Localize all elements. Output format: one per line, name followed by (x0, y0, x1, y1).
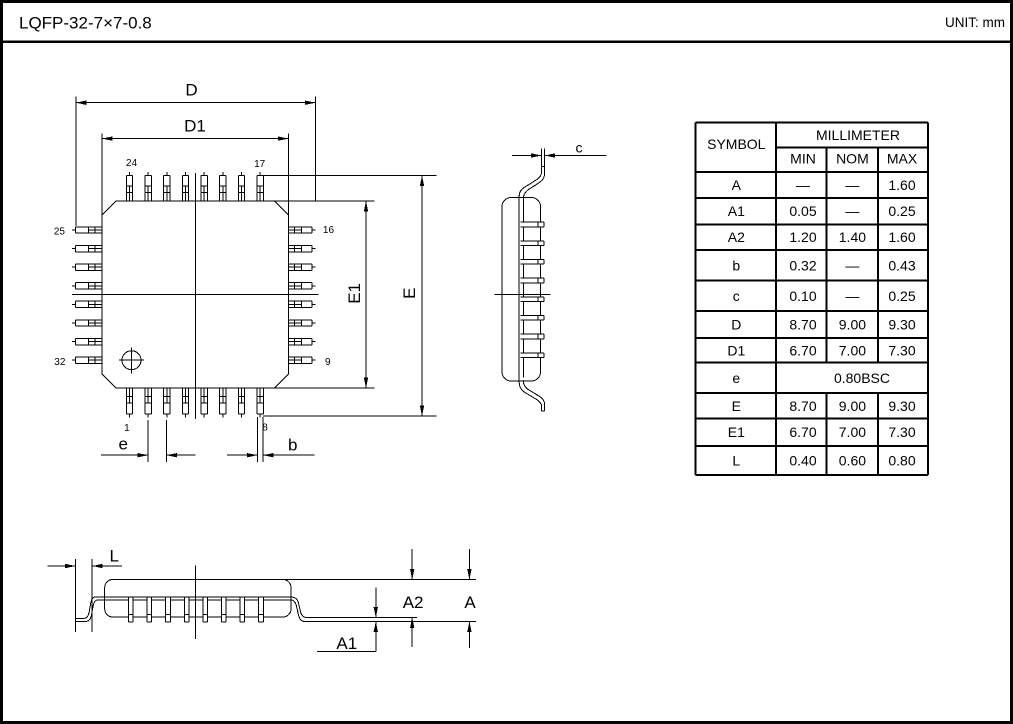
svg-text:LQFP-32-7×7-0.8: LQFP-32-7×7-0.8 (19, 14, 152, 33)
svg-text:6.70: 6.70 (789, 424, 816, 440)
svg-text:—: — (845, 257, 859, 273)
svg-text:9: 9 (325, 357, 331, 368)
svg-text:b: b (732, 257, 740, 273)
svg-text:32: 32 (54, 357, 66, 368)
svg-text:e: e (732, 370, 740, 386)
svg-text:9.30: 9.30 (888, 398, 915, 414)
svg-text:24: 24 (126, 158, 138, 169)
svg-text:E: E (732, 398, 741, 414)
svg-text:1.20: 1.20 (789, 229, 816, 245)
svg-text:0.43: 0.43 (888, 257, 915, 273)
svg-text:9.00: 9.00 (839, 317, 866, 333)
svg-text:E: E (400, 288, 419, 299)
svg-text:D1: D1 (184, 117, 206, 136)
svg-text:L: L (109, 547, 118, 566)
svg-text:MIN: MIN (790, 150, 816, 166)
svg-text:—: — (845, 288, 859, 304)
svg-text:MAX: MAX (887, 150, 918, 166)
svg-text:0.25: 0.25 (888, 203, 915, 219)
svg-text:—: — (845, 177, 859, 193)
svg-text:b: b (288, 436, 297, 455)
svg-text:7.00: 7.00 (839, 424, 866, 440)
svg-text:A1: A1 (336, 634, 357, 653)
svg-text:c: c (576, 140, 583, 156)
svg-text:16: 16 (323, 225, 335, 236)
svg-text:D: D (185, 81, 197, 100)
svg-text:25: 25 (54, 227, 66, 238)
svg-text:e: e (118, 435, 127, 454)
svg-text:1.60: 1.60 (888, 229, 915, 245)
svg-text:17: 17 (254, 159, 266, 170)
svg-text:9.00: 9.00 (839, 398, 866, 414)
svg-text:E1: E1 (345, 283, 364, 304)
svg-text:D1: D1 (727, 342, 745, 358)
svg-text:7.00: 7.00 (839, 342, 866, 358)
svg-text:UNIT: mm: UNIT: mm (945, 15, 1005, 30)
svg-text:0.10: 0.10 (789, 288, 816, 304)
svg-text:A2: A2 (728, 229, 745, 245)
svg-text:8.70: 8.70 (789, 317, 816, 333)
svg-text:D: D (731, 317, 741, 333)
svg-text:0.25: 0.25 (888, 288, 915, 304)
svg-text:E1: E1 (728, 424, 745, 440)
svg-text:8.70: 8.70 (789, 398, 816, 414)
svg-text:0.80BSC: 0.80BSC (834, 370, 890, 386)
svg-text:1: 1 (124, 423, 130, 434)
svg-text:SYMBOL: SYMBOL (707, 136, 766, 152)
svg-text:0.80: 0.80 (888, 452, 915, 468)
svg-text:MILLIMETER: MILLIMETER (816, 127, 900, 143)
svg-text:0.60: 0.60 (839, 452, 866, 468)
svg-text:L: L (732, 452, 740, 468)
svg-text:7.30: 7.30 (888, 342, 915, 358)
svg-text:A: A (464, 593, 476, 612)
svg-text:A2: A2 (403, 593, 424, 612)
svg-text:1.60: 1.60 (888, 177, 915, 193)
svg-text:—: — (796, 177, 810, 193)
svg-text:0.32: 0.32 (789, 257, 816, 273)
svg-text:1.40: 1.40 (839, 229, 866, 245)
svg-text:0.40: 0.40 (789, 452, 816, 468)
svg-text:0.05: 0.05 (789, 203, 816, 219)
svg-text:6.70: 6.70 (789, 342, 816, 358)
svg-text:A1: A1 (728, 203, 745, 219)
svg-text:NOM: NOM (836, 150, 869, 166)
svg-text:c: c (733, 288, 740, 304)
svg-text:A: A (732, 177, 742, 193)
svg-text:—: — (845, 203, 859, 219)
svg-text:7.30: 7.30 (888, 424, 915, 440)
svg-text:9.30: 9.30 (888, 317, 915, 333)
